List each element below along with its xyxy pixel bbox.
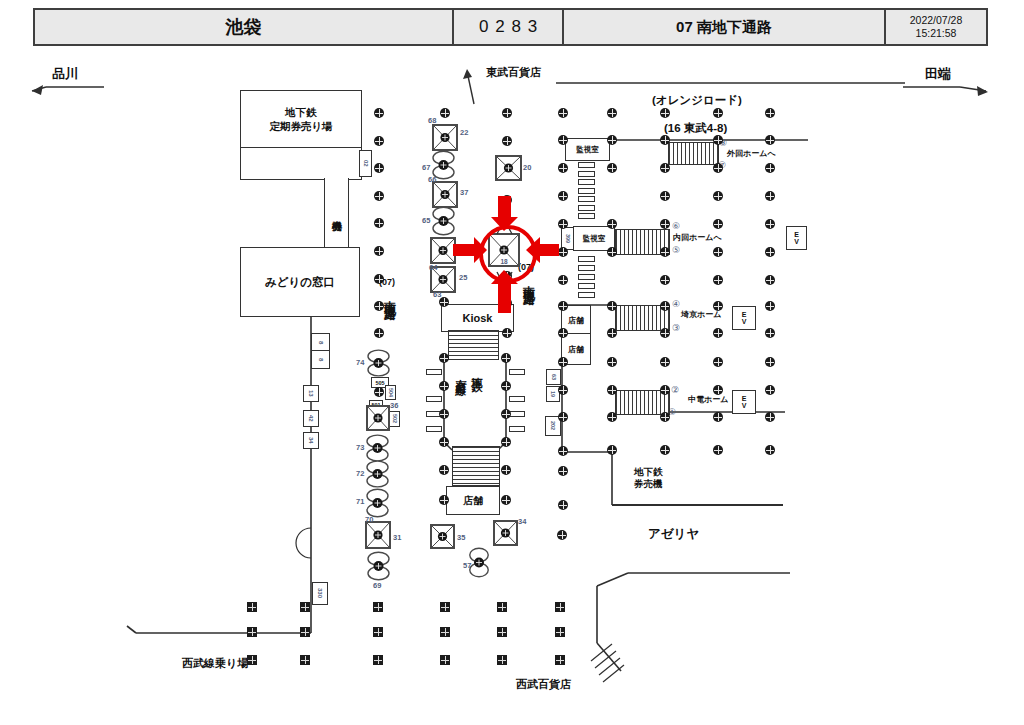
round-pillar	[765, 385, 775, 395]
square-pillar	[373, 655, 383, 665]
round-pillar	[765, 219, 775, 229]
sign-35-glyph	[430, 524, 455, 549]
seibu-dept-label: 西武百貨店	[516, 678, 571, 692]
pillar-number-31: 31	[393, 533, 401, 542]
round-pillar	[502, 195, 512, 205]
round-pillar	[660, 301, 670, 311]
round-pillar	[374, 218, 384, 228]
tobu-dept-label: 東武百貨店	[486, 66, 541, 80]
round-pillar	[374, 328, 384, 338]
sign-37-glyph	[432, 181, 458, 208]
round-pillar	[374, 108, 384, 118]
stairs-tobu-4-8	[668, 142, 719, 165]
round-pillar	[765, 357, 775, 367]
railing-rung	[578, 292, 595, 298]
pillar-number-73: 73	[356, 443, 364, 452]
round-pillar	[502, 298, 512, 308]
gate-bar	[426, 396, 442, 402]
pillar-number-74: 74	[356, 358, 364, 367]
round-pillar	[607, 135, 617, 145]
round-pillar	[765, 445, 775, 455]
round-pillar	[501, 465, 511, 475]
square-pillar	[300, 655, 310, 665]
round-pillar	[558, 500, 568, 510]
chuden-platform-label: 中電ホーム	[688, 395, 728, 405]
sign-31	[365, 521, 391, 553]
wall-line	[127, 626, 136, 633]
round-pillar	[607, 163, 617, 173]
pillar-number-36: 36	[390, 401, 398, 410]
sign-22-glyph	[432, 124, 458, 151]
subway-pass-office: 地下鉄 定期券売り場	[240, 90, 362, 149]
circled-4: ④	[672, 299, 680, 310]
sign-64-glyph	[430, 237, 456, 264]
sign-31-glyph	[365, 521, 391, 549]
square-pillar	[300, 602, 310, 612]
pillar-number-69: 69	[373, 581, 381, 590]
round-pillar	[374, 301, 384, 311]
tag-63: 63	[546, 369, 561, 385]
sign-72-glyph	[365, 460, 390, 488]
railing-rung	[578, 274, 595, 280]
railing-rung	[578, 171, 595, 177]
round-pillar	[607, 385, 617, 395]
pillar-number-71: 71	[356, 497, 364, 506]
tag-13: 13	[303, 385, 319, 402]
round-pillar	[713, 135, 723, 145]
round-pillar	[374, 274, 384, 284]
gate-bar	[509, 426, 525, 432]
round-pillar	[765, 247, 775, 257]
sign-36-glyph	[366, 405, 390, 431]
round-pillar	[765, 328, 775, 338]
round-pillar	[558, 135, 568, 145]
map-lines-layer	[0, 0, 1024, 725]
gate-bar	[509, 411, 525, 417]
round-pillar	[501, 409, 511, 419]
pillar-number-66: 66	[428, 175, 436, 184]
railing-rung	[578, 283, 595, 289]
round-pillar	[660, 219, 670, 229]
yurakucho-line-col2: 有楽町線	[455, 370, 466, 378]
yurakucho-line-col1: 地下鉄	[471, 368, 482, 374]
round-pillar	[607, 412, 617, 422]
round-pillar	[765, 163, 775, 173]
sign-20-glyph	[495, 155, 522, 181]
station-map-page: 池袋 0283 07 南地下通路 2022/07/28 15:21:58 品川 …	[0, 0, 1024, 725]
round-pillar	[558, 191, 568, 201]
round-pillar	[607, 108, 617, 118]
round-pillar	[660, 412, 670, 422]
round-pillar	[558, 357, 568, 367]
round-pillar	[607, 219, 617, 229]
tobu-arrow-shaft	[468, 76, 474, 104]
subway-ticket-machine-label: 地下鉄 券売機	[634, 466, 663, 490]
railing-rung	[578, 162, 595, 168]
elevator-3: E V	[732, 390, 756, 414]
square-pillar	[497, 655, 507, 665]
sign-65	[431, 206, 456, 240]
round-pillar	[374, 136, 384, 146]
office-annex	[240, 147, 362, 180]
railing-rung	[578, 205, 595, 211]
sign-65-glyph	[431, 206, 456, 236]
sign-36	[366, 405, 390, 435]
square-pillar	[555, 602, 565, 612]
gate-bar	[426, 426, 442, 432]
pillar-number-57: 57	[463, 561, 471, 570]
pillar-number-63: 63	[433, 290, 441, 299]
round-pillar	[765, 412, 775, 422]
railing-rung	[578, 179, 595, 185]
sign-69	[366, 551, 391, 585]
entrance-hatch-line	[591, 644, 612, 661]
pillar-number-67: 67	[422, 163, 430, 172]
circled-3: ③	[672, 323, 680, 334]
round-pillar	[660, 247, 670, 257]
sign-35	[430, 524, 455, 553]
direction-left-label: 品川	[52, 66, 78, 82]
round-pillar	[439, 495, 449, 505]
tag-42: 42	[303, 410, 319, 427]
orange-road-label: (オレンジロード)	[652, 93, 742, 107]
round-pillar	[660, 328, 670, 338]
round-pillar	[713, 357, 723, 367]
square-pillar	[440, 627, 450, 637]
round-pillar	[374, 246, 384, 256]
railing-rung	[578, 188, 595, 194]
square-pillar	[300, 627, 310, 637]
ticket-machines-corridor: 券売機	[324, 178, 349, 247]
passage07-left-vertical: 南地下通路	[384, 291, 396, 301]
tag-502: 502	[389, 411, 400, 427]
round-pillar	[558, 108, 568, 118]
round-pillar	[607, 357, 617, 367]
pillar-number-72: 72	[356, 469, 364, 478]
round-pillar	[439, 353, 449, 363]
round-pillar	[607, 247, 617, 257]
railing-rung	[578, 265, 595, 271]
square-pillar	[440, 602, 450, 612]
tag-330: 330	[312, 582, 328, 605]
wall-line	[597, 573, 628, 586]
tag-8b: 8	[311, 350, 330, 369]
highlight-ring	[479, 225, 537, 283]
round-pillar	[440, 108, 450, 118]
round-pillar	[501, 495, 511, 505]
round-pillar	[607, 328, 617, 338]
round-pillar	[558, 446, 568, 456]
seibu-line-label: 西武線乗り場	[182, 657, 248, 671]
round-pillar	[660, 357, 670, 367]
round-pillar	[713, 247, 723, 257]
square-pillar	[373, 602, 383, 612]
round-pillar	[660, 135, 670, 145]
square-pillar	[497, 627, 507, 637]
round-pillar	[660, 445, 670, 455]
round-pillar	[765, 135, 775, 145]
round-pillar	[765, 191, 775, 201]
stairs-kiosk-lower	[452, 446, 500, 486]
round-pillar	[439, 381, 449, 391]
round-pillar	[713, 191, 723, 201]
tag-34: 34	[303, 432, 319, 449]
tobu-arrow-head	[463, 69, 472, 79]
elevator-1: E V	[786, 226, 807, 250]
round-pillar	[439, 465, 449, 475]
round-pillar	[501, 437, 511, 447]
pillar-number-35: 35	[457, 533, 465, 542]
pillar-number-20: 20	[523, 163, 531, 172]
pillar-number-64: 64	[429, 263, 437, 272]
round-pillar	[713, 163, 723, 173]
square-pillar	[247, 627, 257, 637]
gate-bar	[509, 369, 525, 375]
tobu-4-8-label: (16 東武4-8)	[664, 121, 727, 135]
azeriya-label: アゼリヤ	[648, 527, 699, 543]
round-pillar	[765, 301, 775, 311]
circled-5: ⑤	[672, 245, 680, 256]
round-pillar	[607, 301, 617, 311]
round-pillar	[558, 301, 568, 311]
round-pillar	[558, 328, 568, 338]
round-pillar	[558, 219, 568, 229]
round-pillar	[713, 445, 723, 455]
door-swing-arc	[296, 528, 311, 558]
square-pillar	[440, 655, 450, 665]
sign-34-glyph	[493, 520, 518, 546]
monitor-room-1: 監視室	[565, 138, 610, 161]
sign-71-glyph	[365, 488, 390, 518]
round-pillar	[558, 163, 568, 173]
round-pillar	[660, 191, 670, 201]
tag-02: 02	[359, 150, 372, 177]
square-pillar	[373, 627, 383, 637]
round-pillar	[713, 108, 723, 118]
round-pillar	[660, 275, 670, 285]
pillar-number-68: 68	[428, 116, 436, 125]
round-pillar	[374, 163, 384, 173]
square-pillar	[555, 627, 565, 637]
round-pillar	[713, 328, 723, 338]
outer-loop-label: 外回ホームへ	[727, 149, 776, 159]
round-pillar	[558, 412, 568, 422]
sign-74-glyph	[366, 349, 391, 377]
round-pillar	[713, 301, 723, 311]
pillar-number-65: 65	[422, 216, 430, 225]
square-pillar	[247, 602, 257, 612]
round-pillar	[502, 108, 512, 118]
square-pillar	[497, 602, 507, 612]
pillar-number-34: 34	[518, 517, 526, 526]
direction-right-label: 田端	[925, 66, 951, 82]
gate-bar	[426, 369, 442, 375]
sign-69-glyph	[366, 551, 391, 581]
round-pillar	[660, 163, 670, 173]
sign-20	[495, 155, 522, 185]
round-pillar	[713, 385, 723, 395]
round-pillar	[765, 275, 775, 285]
round-pillar	[374, 387, 384, 397]
square-pillar	[247, 655, 257, 665]
round-pillar	[374, 191, 384, 201]
railing-rung	[578, 256, 595, 262]
tag-504: 504	[385, 385, 396, 400]
circled-2: ②	[671, 385, 679, 396]
round-pillar	[557, 530, 567, 540]
pillar-number-25: 25	[459, 273, 467, 282]
round-pillar	[660, 108, 670, 118]
sign-73-glyph	[365, 434, 390, 462]
sign-34	[493, 520, 518, 550]
round-pillar	[558, 247, 568, 257]
round-pillar	[660, 385, 670, 395]
round-pillar	[501, 353, 511, 363]
inner-loop-label: 内回ホームへ	[673, 233, 722, 243]
tenpo-kiosk: 店舗	[446, 486, 500, 515]
round-pillar	[558, 385, 568, 395]
round-pillar	[713, 412, 723, 422]
round-pillar	[439, 437, 449, 447]
stairs-kiosk-upper	[448, 330, 499, 360]
round-pillar	[558, 275, 568, 285]
round-pillar	[502, 328, 512, 338]
railing-rung	[578, 213, 595, 219]
round-pillar	[502, 136, 512, 146]
sign-74	[366, 349, 391, 381]
circled-6: ⑥	[672, 221, 680, 232]
saikyo-platform-label: 埼京ホーム	[681, 310, 721, 320]
square-pillar	[555, 655, 565, 665]
round-pillar	[765, 108, 775, 118]
gate-bar	[509, 396, 525, 402]
entrance-hatch-line	[603, 665, 624, 682]
tabata-arrow-head	[977, 86, 988, 96]
pillar-number-22: 22	[460, 128, 468, 137]
round-pillar	[713, 275, 723, 285]
round-pillar	[558, 466, 568, 476]
pillar-number-70: 70	[365, 515, 373, 524]
round-pillar	[607, 445, 617, 455]
elevator-2: E V	[732, 306, 756, 330]
pillar-number-37: 37	[460, 188, 468, 197]
round-pillar	[439, 409, 449, 419]
round-pillar	[713, 219, 723, 229]
midori-no-madoguchi: みどりの窓口	[240, 247, 360, 317]
kiosk: Kiosk	[441, 304, 514, 332]
round-pillar	[501, 381, 511, 391]
railing-rung	[578, 196, 595, 202]
